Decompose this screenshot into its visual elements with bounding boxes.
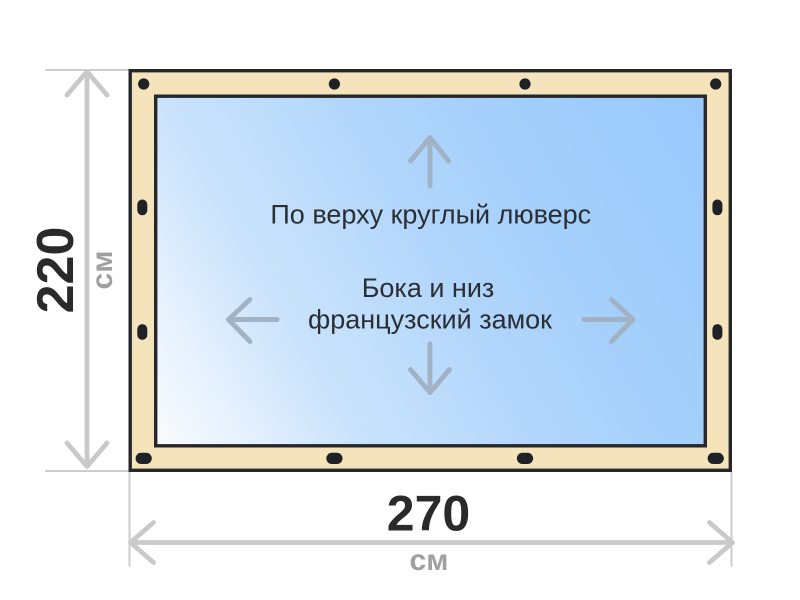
svg-text:французский замок: французский замок — [308, 305, 552, 335]
svg-text:По верху круглый люверс: По верху круглый люверс — [270, 200, 591, 230]
svg-text:Бока и низ: Бока и низ — [362, 273, 495, 303]
svg-text:см: см — [86, 251, 119, 290]
svg-text:220: 220 — [27, 227, 85, 314]
svg-text:см: см — [410, 544, 449, 577]
svg-text:270: 270 — [387, 486, 470, 542]
